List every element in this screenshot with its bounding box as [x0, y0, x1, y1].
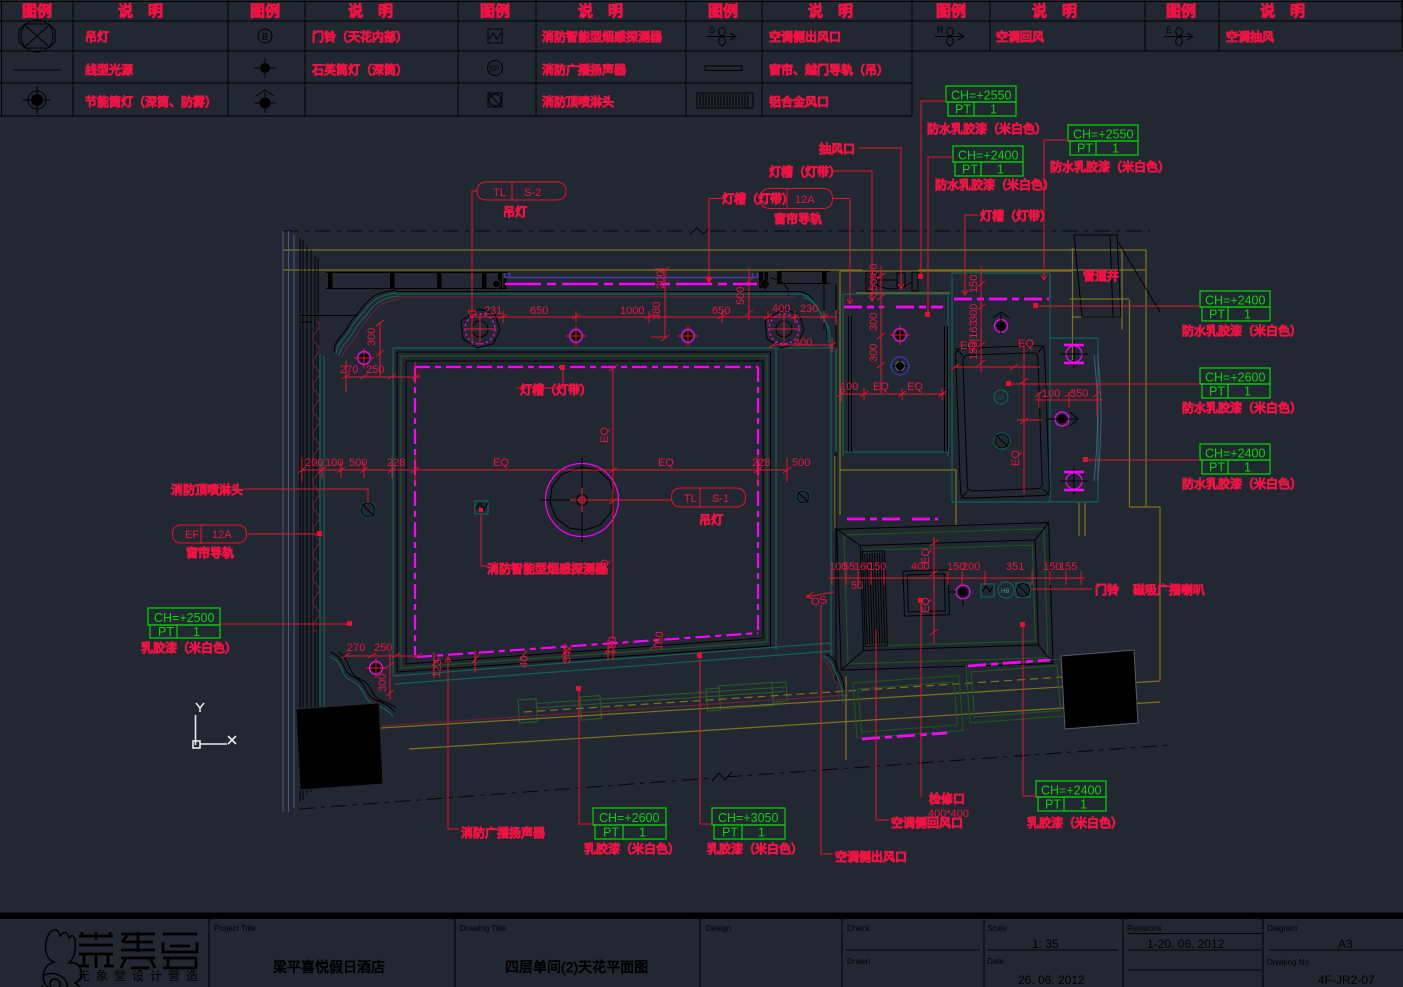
svg-text:消防智能型烟感探测器: 消防智能型烟感探测器 [542, 29, 663, 44]
svg-text:窗帘导轨: 窗帘导轨 [186, 545, 234, 560]
svg-text:PT: PT [1077, 142, 1093, 156]
svg-text:100: 100 [1042, 388, 1060, 400]
svg-text:PT: PT [955, 103, 971, 117]
svg-text:消防广播扬声器: 消防广播扬声器 [542, 62, 627, 77]
svg-text:150: 150 [968, 275, 980, 293]
svg-text:空调侧出风口: 空调侧出风口 [769, 29, 841, 44]
svg-text:350: 350 [1070, 388, 1088, 400]
svg-text:1: 1 [193, 625, 200, 639]
svg-text:EQ: EQ [1018, 338, 1034, 350]
svg-text:250: 250 [366, 364, 384, 376]
svg-text:150: 150 [606, 636, 619, 655]
svg-text:Drwaing No.: Drwaing No. [1267, 958, 1311, 967]
svg-text:图例: 图例 [250, 2, 280, 20]
svg-text:CH=+2500: CH=+2500 [154, 611, 215, 625]
svg-text:管道井: 管道井 [1083, 268, 1119, 283]
svg-text:300: 300 [366, 328, 378, 346]
svg-text:CH=+2600: CH=+2600 [1205, 371, 1266, 385]
svg-text:EQ: EQ [907, 381, 923, 393]
svg-text:节能筒灯（深筒、防雾）: 节能筒灯（深筒、防雾） [85, 94, 217, 109]
svg-text:CH=+2600: CH=+2600 [599, 811, 660, 825]
svg-text:400*400: 400*400 [928, 808, 969, 820]
svg-text:说 明: 说 明 [118, 2, 163, 20]
svg-text:1: 1 [639, 826, 646, 840]
svg-text:铝合金风口: 铝合金风口 [769, 94, 829, 109]
svg-text:乳胶漆（米白色）: 乳胶漆（米白色） [584, 841, 680, 856]
svg-text:650: 650 [712, 305, 730, 317]
svg-text:270: 270 [340, 364, 358, 376]
svg-text:1000: 1000 [620, 305, 644, 317]
svg-text:TL: TL [493, 187, 506, 199]
svg-text:吊灯: 吊灯 [503, 204, 527, 219]
svg-text:EQ: EQ [960, 340, 976, 352]
svg-text:防水乳胶漆（米白色）: 防水乳胶漆（米白色） [1050, 159, 1170, 174]
svg-text:200: 200 [655, 271, 667, 289]
svg-text:PT: PT [962, 163, 978, 177]
svg-text:SP: SP [996, 396, 1004, 402]
svg-text:防水乳胶漆（米白色）: 防水乳胶漆（米白色） [1182, 400, 1302, 415]
svg-text:OS: OS [810, 594, 828, 609]
svg-text:CH=+2400: CH=+2400 [1041, 784, 1102, 798]
svg-text:图例: 图例 [708, 2, 738, 20]
svg-text:4F-JR2-07: 4F-JR2-07 [1318, 973, 1375, 987]
svg-text:图例: 图例 [1166, 2, 1196, 20]
svg-text:CH=+2400: CH=+2400 [1205, 447, 1266, 461]
svg-text:空调回风: 空调回风 [996, 29, 1044, 44]
svg-text:EF: EF [185, 529, 199, 541]
svg-text:PT: PT [1209, 308, 1225, 322]
svg-text:150|80: 150|80 [868, 264, 880, 297]
svg-text:380: 380 [651, 302, 663, 320]
svg-text:乳胶漆（米白色）: 乳胶漆（米白色） [1027, 815, 1123, 830]
svg-text:EQ: EQ [1010, 450, 1022, 466]
svg-text:检修口: 检修口 [929, 791, 965, 806]
svg-text:抽风口: 抽风口 [819, 141, 855, 156]
svg-text:1: 1 [997, 163, 1004, 177]
svg-text:PT: PT [1209, 461, 1225, 475]
svg-text:灯槽（灯带）: 灯槽（灯带） [520, 382, 592, 397]
svg-text:门铃: 门铃 [1095, 582, 1120, 597]
svg-text:EQ: EQ [493, 457, 509, 469]
svg-text:230: 230 [800, 303, 818, 315]
svg-text:1: 1 [1112, 142, 1119, 156]
svg-text:灯槽（灯带）: 灯槽（灯带） [722, 191, 794, 206]
svg-text:400: 400 [772, 303, 790, 315]
svg-text:说 明: 说 明 [578, 2, 623, 20]
svg-text:PT: PT [158, 625, 174, 639]
svg-text:图例: 图例 [22, 2, 52, 20]
svg-text:消防智能型烟感探测器: 消防智能型烟感探测器 [487, 561, 608, 576]
svg-text:吊灯: 吊灯 [85, 29, 109, 44]
svg-text:SP: SP [489, 65, 500, 74]
svg-text:图例: 图例 [480, 2, 510, 20]
svg-text:PT: PT [1209, 385, 1225, 399]
svg-text:TL: TL [684, 493, 697, 505]
svg-text:乳胶漆（米白色）: 乳胶漆（米白色） [707, 841, 803, 856]
svg-text:1-20. 06. 2012: 1-20. 06. 2012 [1147, 937, 1225, 951]
svg-text:EQ: EQ [599, 427, 611, 443]
svg-text:四层单间(2)天花平面图: 四层单间(2)天花平面图 [505, 959, 648, 975]
svg-text:门铃（天花内部）: 门铃（天花内部） [312, 29, 408, 44]
svg-text:CH=+3050: CH=+3050 [718, 811, 779, 825]
svg-text:消防广播扬声器: 消防广播扬声器 [461, 825, 546, 840]
svg-text:500: 500 [735, 287, 747, 305]
svg-text:乳胶漆（米白色）: 乳胶漆（米白色） [141, 640, 237, 655]
svg-text:说 明: 说 明 [348, 2, 393, 20]
svg-text:26. 06. 2012: 26. 06. 2012 [1018, 973, 1085, 987]
svg-text:650: 650 [530, 305, 548, 317]
svg-text:1: 1 [1080, 798, 1087, 812]
svg-text:PT: PT [722, 826, 738, 840]
svg-text:无象堂设计营造: 无象堂设计营造 [78, 969, 204, 983]
svg-text:B: B [262, 32, 268, 42]
svg-text:1: 1 [758, 826, 765, 840]
svg-text:300: 300 [968, 304, 980, 322]
svg-text:300: 300 [868, 344, 880, 362]
svg-text:1: 1 [1244, 308, 1251, 322]
svg-text:Diagram: Diagram [1267, 924, 1298, 933]
svg-text:Drawn: Drawn [847, 957, 870, 966]
svg-text:空调侧出风口: 空调侧出风口 [835, 849, 907, 864]
svg-text:1: 1 [1244, 385, 1251, 399]
svg-text:说 明: 说 明 [1260, 2, 1305, 20]
svg-text:说 明: 说 明 [1032, 2, 1077, 20]
svg-text:12A: 12A [795, 194, 815, 206]
svg-text:HB: HB [1001, 589, 1009, 595]
svg-text:155: 155 [1059, 561, 1077, 573]
svg-text:228: 228 [752, 457, 770, 469]
svg-text:1: 1 [990, 103, 997, 117]
svg-text:Design: Design [706, 924, 731, 933]
svg-text:空调抽风: 空调抽风 [1226, 29, 1274, 44]
svg-text:Scale: Scale [987, 924, 1008, 933]
svg-text:防水乳胶漆（米白色）: 防水乳胶漆（米白色） [1182, 476, 1302, 491]
svg-text:S-1: S-1 [712, 493, 729, 505]
svg-text:500: 500 [792, 457, 810, 469]
svg-text:梁平喜悦假日酒店: 梁平喜悦假日酒店 [273, 959, 385, 975]
svg-text:S-2: S-2 [524, 187, 541, 199]
svg-text:灯槽（灯带）: 灯槽（灯带） [980, 208, 1052, 223]
svg-text:防水乳胶漆（米白色）: 防水乳胶漆（米白色） [1182, 323, 1302, 338]
svg-text:E: E [1166, 25, 1172, 35]
svg-text:防水乳胶漆（米白色）: 防水乳胶漆（米白色） [935, 177, 1055, 192]
svg-text:磁吸广播喇叭: 磁吸广播喇叭 [1132, 582, 1205, 597]
svg-text:300: 300 [868, 313, 880, 331]
svg-text:窗帘、越门导轨（吊）: 窗帘、越门导轨（吊） [769, 62, 889, 77]
svg-text:231: 231 [484, 305, 502, 317]
svg-text:CH=+2550: CH=+2550 [951, 89, 1012, 103]
svg-text:270: 270 [347, 642, 365, 654]
svg-text:351: 351 [1006, 561, 1024, 573]
svg-text:200: 200 [305, 457, 323, 469]
svg-text:石英筒灯（深筒）: 石英筒灯（深筒） [311, 62, 408, 77]
svg-text:窗帘导轨: 窗帘导轨 [774, 211, 822, 226]
svg-text:150: 150 [868, 561, 886, 573]
svg-text:图例: 图例 [936, 2, 966, 20]
svg-text:吊灯: 吊灯 [699, 512, 723, 527]
svg-text:100: 100 [325, 457, 343, 469]
svg-text:Date: Date [987, 957, 1004, 966]
svg-text:50: 50 [851, 580, 863, 592]
svg-text:EQ: EQ [658, 457, 674, 469]
svg-text:250: 250 [374, 642, 392, 654]
svg-text:160: 160 [653, 631, 666, 650]
svg-text:CH=+2400: CH=+2400 [1205, 294, 1266, 308]
svg-text:S: S [709, 25, 715, 35]
svg-text:100: 100 [840, 381, 858, 393]
svg-text:A3: A3 [1338, 937, 1353, 951]
svg-text:1: 1 [1244, 461, 1251, 475]
svg-text:PT: PT [603, 826, 619, 840]
svg-text:228: 228 [387, 457, 405, 469]
svg-text:消防顶喷淋头: 消防顶喷淋头 [171, 482, 243, 497]
svg-text:1: 35: 1: 35 [1032, 937, 1059, 951]
svg-text:400: 400 [794, 337, 812, 349]
svg-text:PT: PT [1045, 798, 1061, 812]
svg-text:200: 200 [962, 561, 980, 573]
svg-text:500: 500 [349, 457, 367, 469]
svg-text:灯槽（灯带）: 灯槽（灯带） [769, 164, 841, 179]
svg-text:Revisions: Revisions [1127, 924, 1162, 933]
svg-text:342: 342 [561, 644, 574, 663]
svg-text:EQ: EQ [920, 548, 932, 564]
svg-text:R: R [937, 25, 944, 35]
svg-text:123: 123 [431, 659, 444, 678]
svg-text:EQ: EQ [873, 381, 889, 393]
svg-text:线型光源: 线型光源 [85, 62, 133, 77]
svg-text:CH=+2400: CH=+2400 [958, 149, 1019, 163]
svg-text:300: 300 [377, 674, 389, 692]
svg-text:Check: Check [847, 924, 871, 933]
svg-text:12A: 12A [212, 529, 232, 541]
svg-text:防水乳胶漆（米白色）: 防水乳胶漆（米白色） [927, 121, 1047, 136]
svg-text:Drawing Title: Drawing Title [460, 924, 507, 933]
svg-text:40: 40 [518, 655, 531, 668]
svg-text:说 明: 说 明 [808, 2, 853, 20]
svg-text:CH=+2550: CH=+2550 [1073, 128, 1134, 142]
svg-text:Project Title: Project Title [214, 924, 256, 933]
svg-text:消防顶喷淋头: 消防顶喷淋头 [542, 94, 614, 109]
